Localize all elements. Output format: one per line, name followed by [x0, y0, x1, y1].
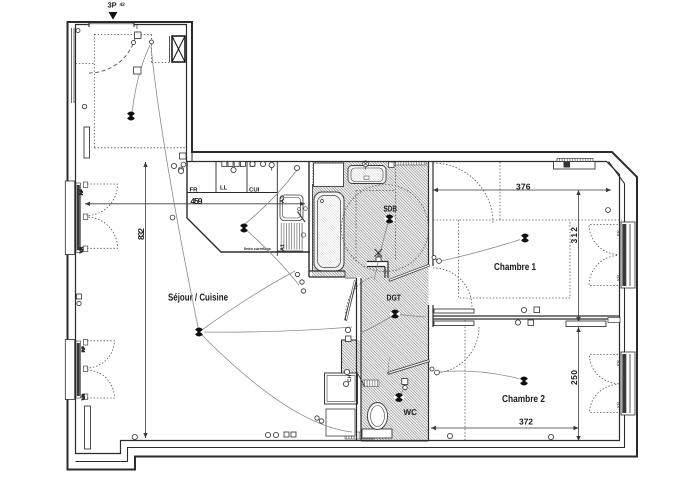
svg-text:DGT: DGT — [387, 293, 402, 303]
svg-text:42: 42 — [120, 2, 126, 8]
svg-text:459: 459 — [191, 196, 203, 206]
svg-text:P.F: P.F — [82, 346, 86, 352]
svg-text:Séjour / Cuisine: Séjour / Cuisine — [168, 293, 228, 304]
svg-text:V.R: V.R — [617, 275, 621, 281]
svg-text:832: 832 — [136, 228, 146, 240]
svg-text:CUI: CUI — [249, 187, 260, 194]
svg-text:V.R: V.R — [617, 402, 621, 408]
svg-text:372: 372 — [519, 417, 533, 427]
svg-text:V.R: V.R — [82, 394, 86, 400]
svg-text:P.R: P.R — [617, 230, 621, 236]
svg-text:WC: WC — [404, 407, 418, 417]
svg-text:Chambre 1: Chambre 1 — [494, 262, 536, 273]
svg-text:CH: CH — [347, 374, 353, 382]
svg-text:A3: A3 — [280, 196, 286, 203]
svg-text:376: 376 — [516, 182, 531, 192]
svg-text:Chambre 2: Chambre 2 — [502, 394, 545, 405]
svg-text:P.F: P.F — [80, 189, 84, 195]
svg-text:P.R: P.R — [617, 360, 621, 366]
svg-text:A1: A1 — [280, 244, 286, 251]
svg-text:312: 312 — [569, 227, 579, 244]
svg-text:250: 250 — [569, 370, 579, 385]
svg-text:FR: FR — [190, 187, 199, 194]
svg-text:3P: 3P — [108, 1, 117, 10]
svg-text:LL: LL — [220, 185, 228, 192]
svg-text:V.R: V.R — [80, 247, 84, 253]
svg-text:SDB: SDB — [384, 204, 398, 214]
